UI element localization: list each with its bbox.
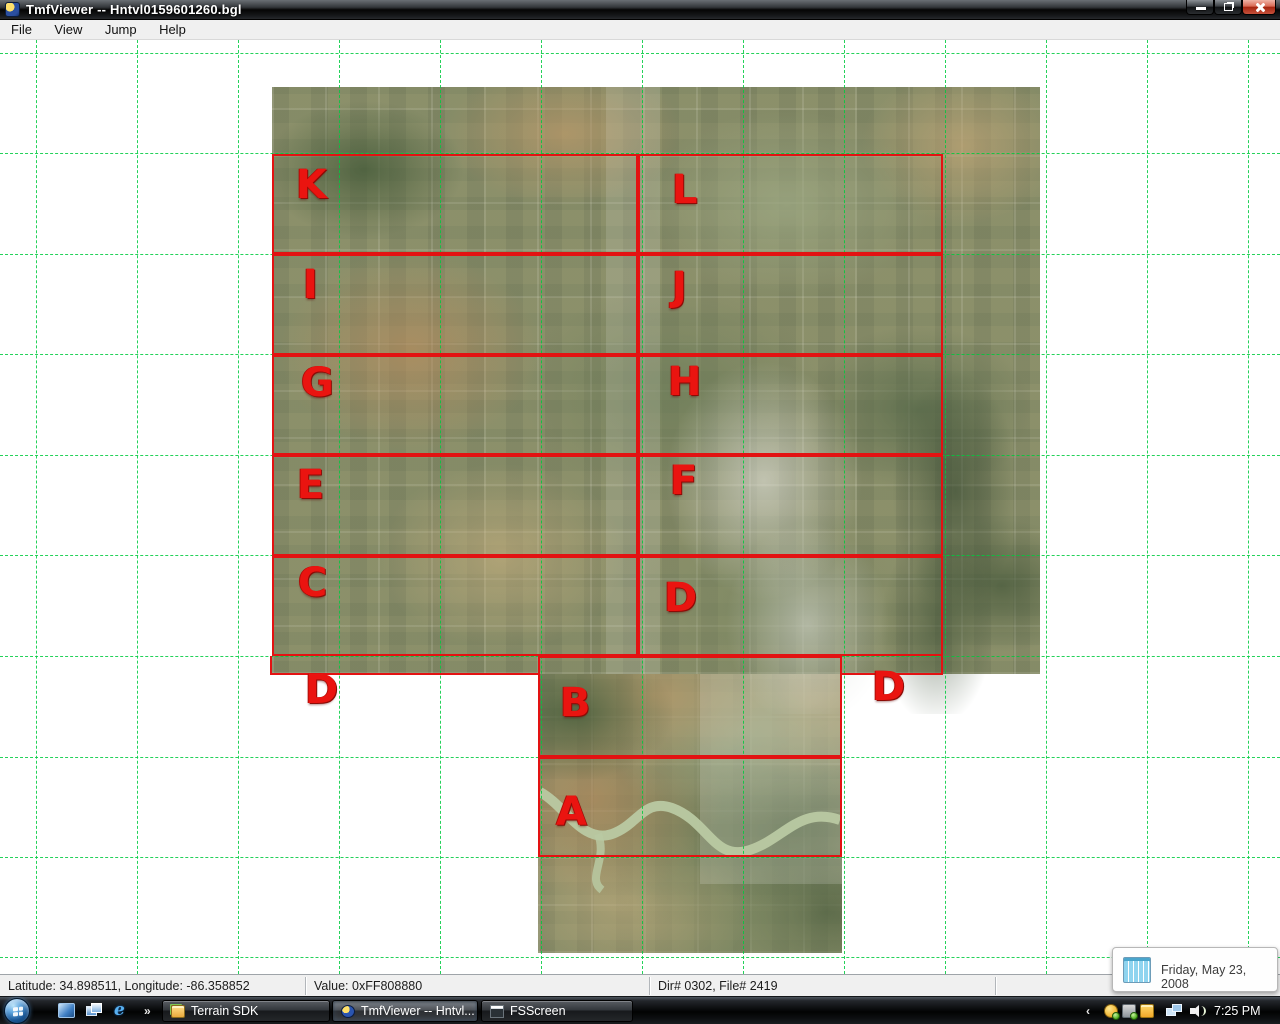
- grid-line-v: [137, 40, 138, 974]
- tray-update-icon[interactable]: [1122, 1004, 1136, 1018]
- region-label-G: G: [301, 363, 334, 403]
- minimize-button[interactable]: [1186, 0, 1214, 15]
- taskbar-button-tmfviewer[interactable]: TmfViewer -- Hntvl...: [332, 1000, 478, 1022]
- menu-jump[interactable]: Jump: [96, 20, 146, 40]
- status-divider: [649, 977, 650, 995]
- taskbar: e » Terrain SDK TmfViewer -- Hntvl... FS…: [0, 996, 1280, 1024]
- close-button[interactable]: [1242, 0, 1276, 15]
- title-bar[interactable]: TmfViewer -- Hntvl0159601260.bgl: [0, 0, 1280, 20]
- taskbar-button-label: Terrain SDK: [191, 1004, 258, 1018]
- map-canvas[interactable]: K L I J G H E F C D D D B A: [0, 40, 1280, 974]
- status-latlon: Latitude: 34.898511, Longitude: -86.3588…: [2, 977, 302, 995]
- monitor-shape: [1172, 1004, 1182, 1012]
- check-badge-icon: [1112, 1012, 1120, 1020]
- region-label-D-box: D: [664, 578, 697, 618]
- grid-line-v: [1046, 40, 1047, 974]
- status-divider: [305, 977, 306, 995]
- speaker-wave: [1200, 1006, 1206, 1016]
- volume-icon[interactable]: [1190, 1004, 1206, 1018]
- region-label-E: E: [297, 465, 324, 505]
- grid-line-h: [0, 857, 1280, 858]
- window-title: TmfViewer -- Hntvl0159601260.bgl: [26, 2, 242, 17]
- menu-view[interactable]: View: [45, 20, 91, 40]
- region-box-E: [272, 455, 638, 556]
- taskbar-clock[interactable]: 7:25 PM: [1214, 997, 1261, 1024]
- grid-line-h: [0, 957, 1280, 958]
- region-label-F: F: [670, 461, 697, 501]
- date-tooltip-text: Friday, May 23, 2008: [1161, 963, 1277, 991]
- screen-icon: [490, 1005, 504, 1018]
- date-tooltip: Friday, May 23, 2008: [1112, 947, 1278, 992]
- quicklaunch-overflow-chevron[interactable]: »: [144, 1004, 151, 1018]
- taskbar-button-label: TmfViewer -- Hntvl...: [361, 1004, 475, 1018]
- calendar-icon: [1123, 957, 1151, 983]
- region-label-D-right: D: [872, 667, 905, 707]
- grid-line-v: [945, 40, 946, 974]
- app-icon: [5, 2, 20, 17]
- windows-flag-icon: [13, 1006, 23, 1016]
- region-label-I: I: [303, 265, 318, 305]
- menu-file[interactable]: File: [2, 20, 41, 40]
- start-button[interactable]: [4, 998, 30, 1024]
- region-label-B: B: [560, 683, 591, 723]
- show-desktop-icon[interactable]: [58, 1003, 75, 1018]
- check-badge-icon: [1130, 1012, 1138, 1020]
- desktop: TmfViewer -- Hntvl0159601260.bgl File Vi…: [0, 0, 1280, 1024]
- status-dir-file: Dir# 0302, File# 2419: [652, 977, 992, 995]
- taskbar-button-fsscreen[interactable]: FSScreen: [481, 1000, 633, 1022]
- taskbar-button-label: FSScreen: [510, 1004, 566, 1018]
- window-shape: [91, 1003, 102, 1013]
- status-value: Value: 0xFF808880: [308, 977, 646, 995]
- region-label-A: A: [556, 792, 587, 832]
- speaker-cone: [1192, 1005, 1199, 1017]
- tray-expand-chevron[interactable]: ‹: [1086, 1004, 1090, 1018]
- status-divider: [995, 977, 996, 995]
- region-label-J: J: [672, 267, 687, 307]
- folder-icon: [171, 1005, 185, 1018]
- minimize-icon: [1196, 7, 1206, 10]
- status-bar: Latitude: 34.898511, Longitude: -86.3588…: [0, 974, 1280, 996]
- region-label-K: K: [296, 165, 327, 205]
- region-label-L: L: [672, 170, 698, 210]
- region-label-H: H: [668, 362, 701, 402]
- taskbar-button-terrain-sdk[interactable]: Terrain SDK: [162, 1000, 330, 1022]
- grid-line-v: [238, 40, 239, 974]
- region-label-D-left: D: [305, 670, 338, 710]
- region-box-I: [272, 254, 638, 355]
- network-icon[interactable]: [1166, 1004, 1184, 1018]
- restore-button[interactable]: [1214, 0, 1242, 15]
- switch-windows-icon[interactable]: [86, 1003, 103, 1018]
- internet-explorer-icon[interactable]: e: [114, 1000, 131, 1015]
- tray-scheduler-icon[interactable]: [1104, 1004, 1118, 1018]
- menu-help[interactable]: Help: [150, 20, 195, 40]
- grid-line-v: [36, 40, 37, 974]
- grid-line-v: [1248, 40, 1249, 974]
- grid-line-h: [0, 53, 1280, 54]
- globe-icon: [341, 1005, 355, 1018]
- grid-line-v: [1147, 40, 1148, 974]
- tray-folder-icon[interactable]: [1140, 1004, 1154, 1018]
- menu-bar: File View Jump Help: [0, 20, 1280, 40]
- region-label-C: C: [298, 563, 327, 603]
- restore-icon: [1224, 3, 1233, 11]
